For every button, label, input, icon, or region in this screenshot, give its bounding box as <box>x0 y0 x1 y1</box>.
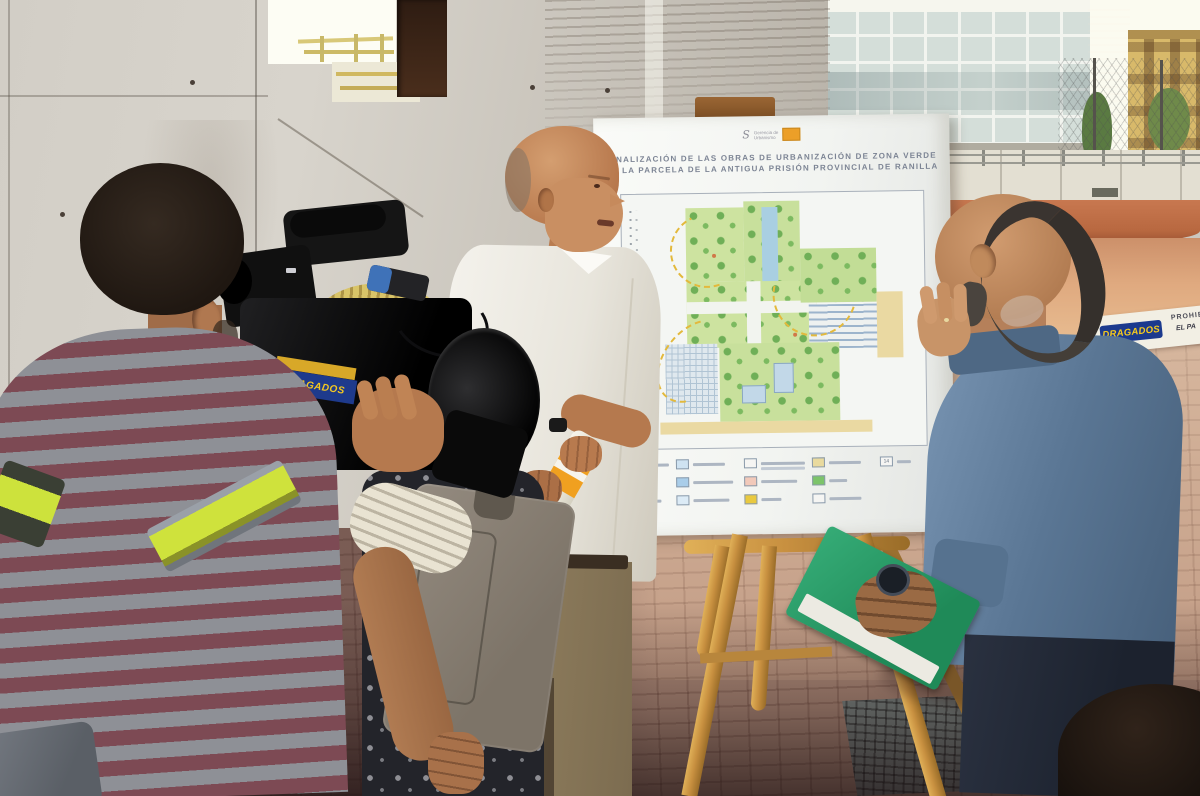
plan-marker-red <box>712 254 716 258</box>
scaffold-rail <box>298 36 393 43</box>
tape-text-prohibido: PROHIB <box>1171 311 1200 321</box>
plan-building-small <box>774 363 794 393</box>
legend-item <box>812 475 880 486</box>
photo-scene: DRAGADOS PROHIB EL PA S Gerencia de Urba… <box>0 0 1200 796</box>
cameraman-hair <box>80 163 244 315</box>
bottom-left-bag <box>0 720 103 796</box>
blueman-watch <box>876 564 910 596</box>
legend-label-smudge <box>693 462 725 465</box>
site-plan-drawing <box>620 190 928 450</box>
poster-logo: S Gerencia de Urbanismo <box>593 126 949 144</box>
legend-item <box>812 457 880 468</box>
legend-label-smudge <box>829 478 847 481</box>
gerencia-s-logo-icon: S <box>742 128 750 141</box>
wall-opening-dark-doorway <box>397 0 447 97</box>
presenter-hand <box>560 436 602 472</box>
plan-plaza-tan <box>877 291 904 357</box>
legend-label-smudge <box>693 480 733 484</box>
xlr-blue-cap <box>366 264 393 294</box>
blueman-finger <box>953 284 967 322</box>
legend-label-smudge <box>761 461 805 465</box>
wall-tie-hole <box>530 85 535 90</box>
wall-joint-horizontal <box>0 95 268 97</box>
scaffold-post <box>354 34 358 62</box>
legend-item <box>744 457 812 468</box>
blueman-ring <box>944 318 949 322</box>
poster-legend: 14 <box>608 456 949 523</box>
poster-legend-column <box>744 457 813 520</box>
legend-color-chip <box>676 459 689 469</box>
presenter-watch <box>549 418 567 432</box>
poster-legend-column <box>676 458 745 521</box>
presenter-hair-fringe <box>505 148 531 212</box>
legend-label-smudge <box>761 497 781 500</box>
legend-color-chip <box>744 476 757 486</box>
legend-label-smudge <box>829 496 861 499</box>
poster-legend-column <box>812 457 881 520</box>
legend-item <box>812 493 880 504</box>
poster-title: FINALIZACIÓN DE LAS OBRAS DE URBANIZACIÓ… <box>602 150 942 177</box>
scaffold-post <box>380 34 384 62</box>
legend-color-chip <box>744 458 757 468</box>
legend-label-smudge <box>829 460 861 463</box>
roofline <box>1128 30 1200 39</box>
orange-logo-box <box>782 128 800 141</box>
legend-color-chip <box>744 494 757 504</box>
presenter-ear <box>538 188 554 212</box>
wall-opening-bright <box>268 0 396 64</box>
legend-color-chip <box>676 477 689 487</box>
plan-tan-strip <box>660 420 872 435</box>
legend-color-chip <box>676 495 689 505</box>
wall-tie-hole <box>60 212 65 217</box>
legend-item <box>676 494 744 505</box>
legend-label-smudge <box>897 460 911 463</box>
wall-tie-hole <box>190 80 195 85</box>
plan-path-vertical <box>746 281 761 347</box>
legend-label-smudge <box>761 479 797 483</box>
legend-color-chip: 14 <box>880 456 893 466</box>
glass-reflection <box>822 72 1090 110</box>
viewfinder-label <box>286 268 296 273</box>
legend-color-chip <box>812 475 825 485</box>
plan-building-small <box>742 385 766 403</box>
woman-hand <box>428 732 484 794</box>
legend-item <box>744 475 812 486</box>
wall-tie-hole <box>605 88 610 93</box>
legend-item <box>744 493 812 504</box>
scaffold-post <box>320 36 324 62</box>
legend-label-smudge <box>693 498 729 502</box>
legend-item <box>676 458 744 469</box>
legend-color-chip <box>812 457 825 467</box>
wall-vent <box>1092 188 1118 197</box>
legend-item <box>676 476 744 487</box>
tape-text-el-paso: EL PA <box>1176 323 1197 332</box>
legend-color-chip <box>812 493 825 503</box>
presenter-eye <box>594 184 600 188</box>
plan-marker-red <box>793 333 797 337</box>
poster-logo-text: Gerencia de Urbanismo <box>754 129 779 139</box>
